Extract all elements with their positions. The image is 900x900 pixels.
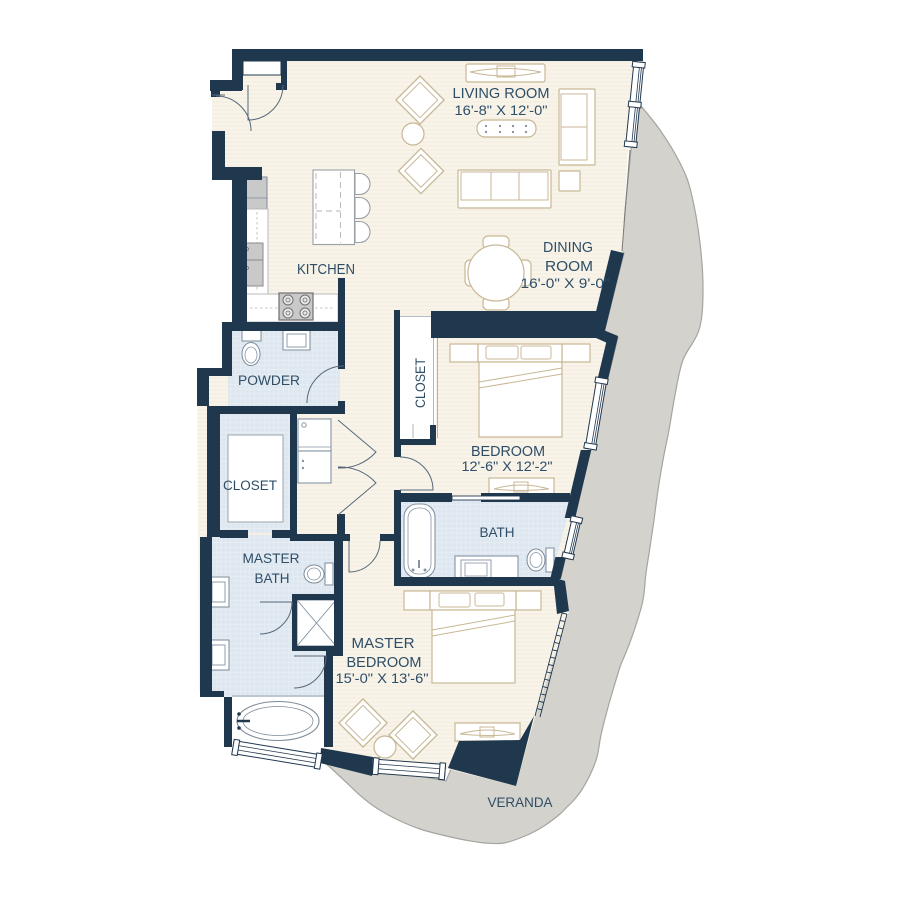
svg-text:BEDROOM: BEDROOM xyxy=(347,655,422,671)
svg-text:MASTER: MASTER xyxy=(352,636,415,652)
svg-text:VERANDA: VERANDA xyxy=(488,794,554,810)
svg-text:LIVING ROOM: LIVING ROOM xyxy=(453,86,550,102)
svg-text:MASTER: MASTER xyxy=(243,551,300,566)
svg-text:12'-6" X 12'-2": 12'-6" X 12'-2" xyxy=(462,458,553,474)
svg-text:CLOSET: CLOSET xyxy=(413,358,428,408)
svg-text:BATH: BATH xyxy=(480,525,515,540)
svg-text:POWDER: POWDER xyxy=(238,373,300,388)
svg-text:16'-0" X 9'-0": 16'-0" X 9'-0" xyxy=(521,275,610,291)
svg-text:16'-8" X 12'-0": 16'-8" X 12'-0" xyxy=(455,102,548,118)
svg-text:15'-0" X 13'-6": 15'-0" X 13'-6" xyxy=(336,670,429,686)
svg-text:DINING: DINING xyxy=(543,240,593,256)
svg-text:ROOM: ROOM xyxy=(545,259,593,275)
svg-text:BATH: BATH xyxy=(255,571,290,586)
svg-text:KITCHEN: KITCHEN xyxy=(297,262,355,278)
svg-text:CLOSET: CLOSET xyxy=(223,478,277,493)
